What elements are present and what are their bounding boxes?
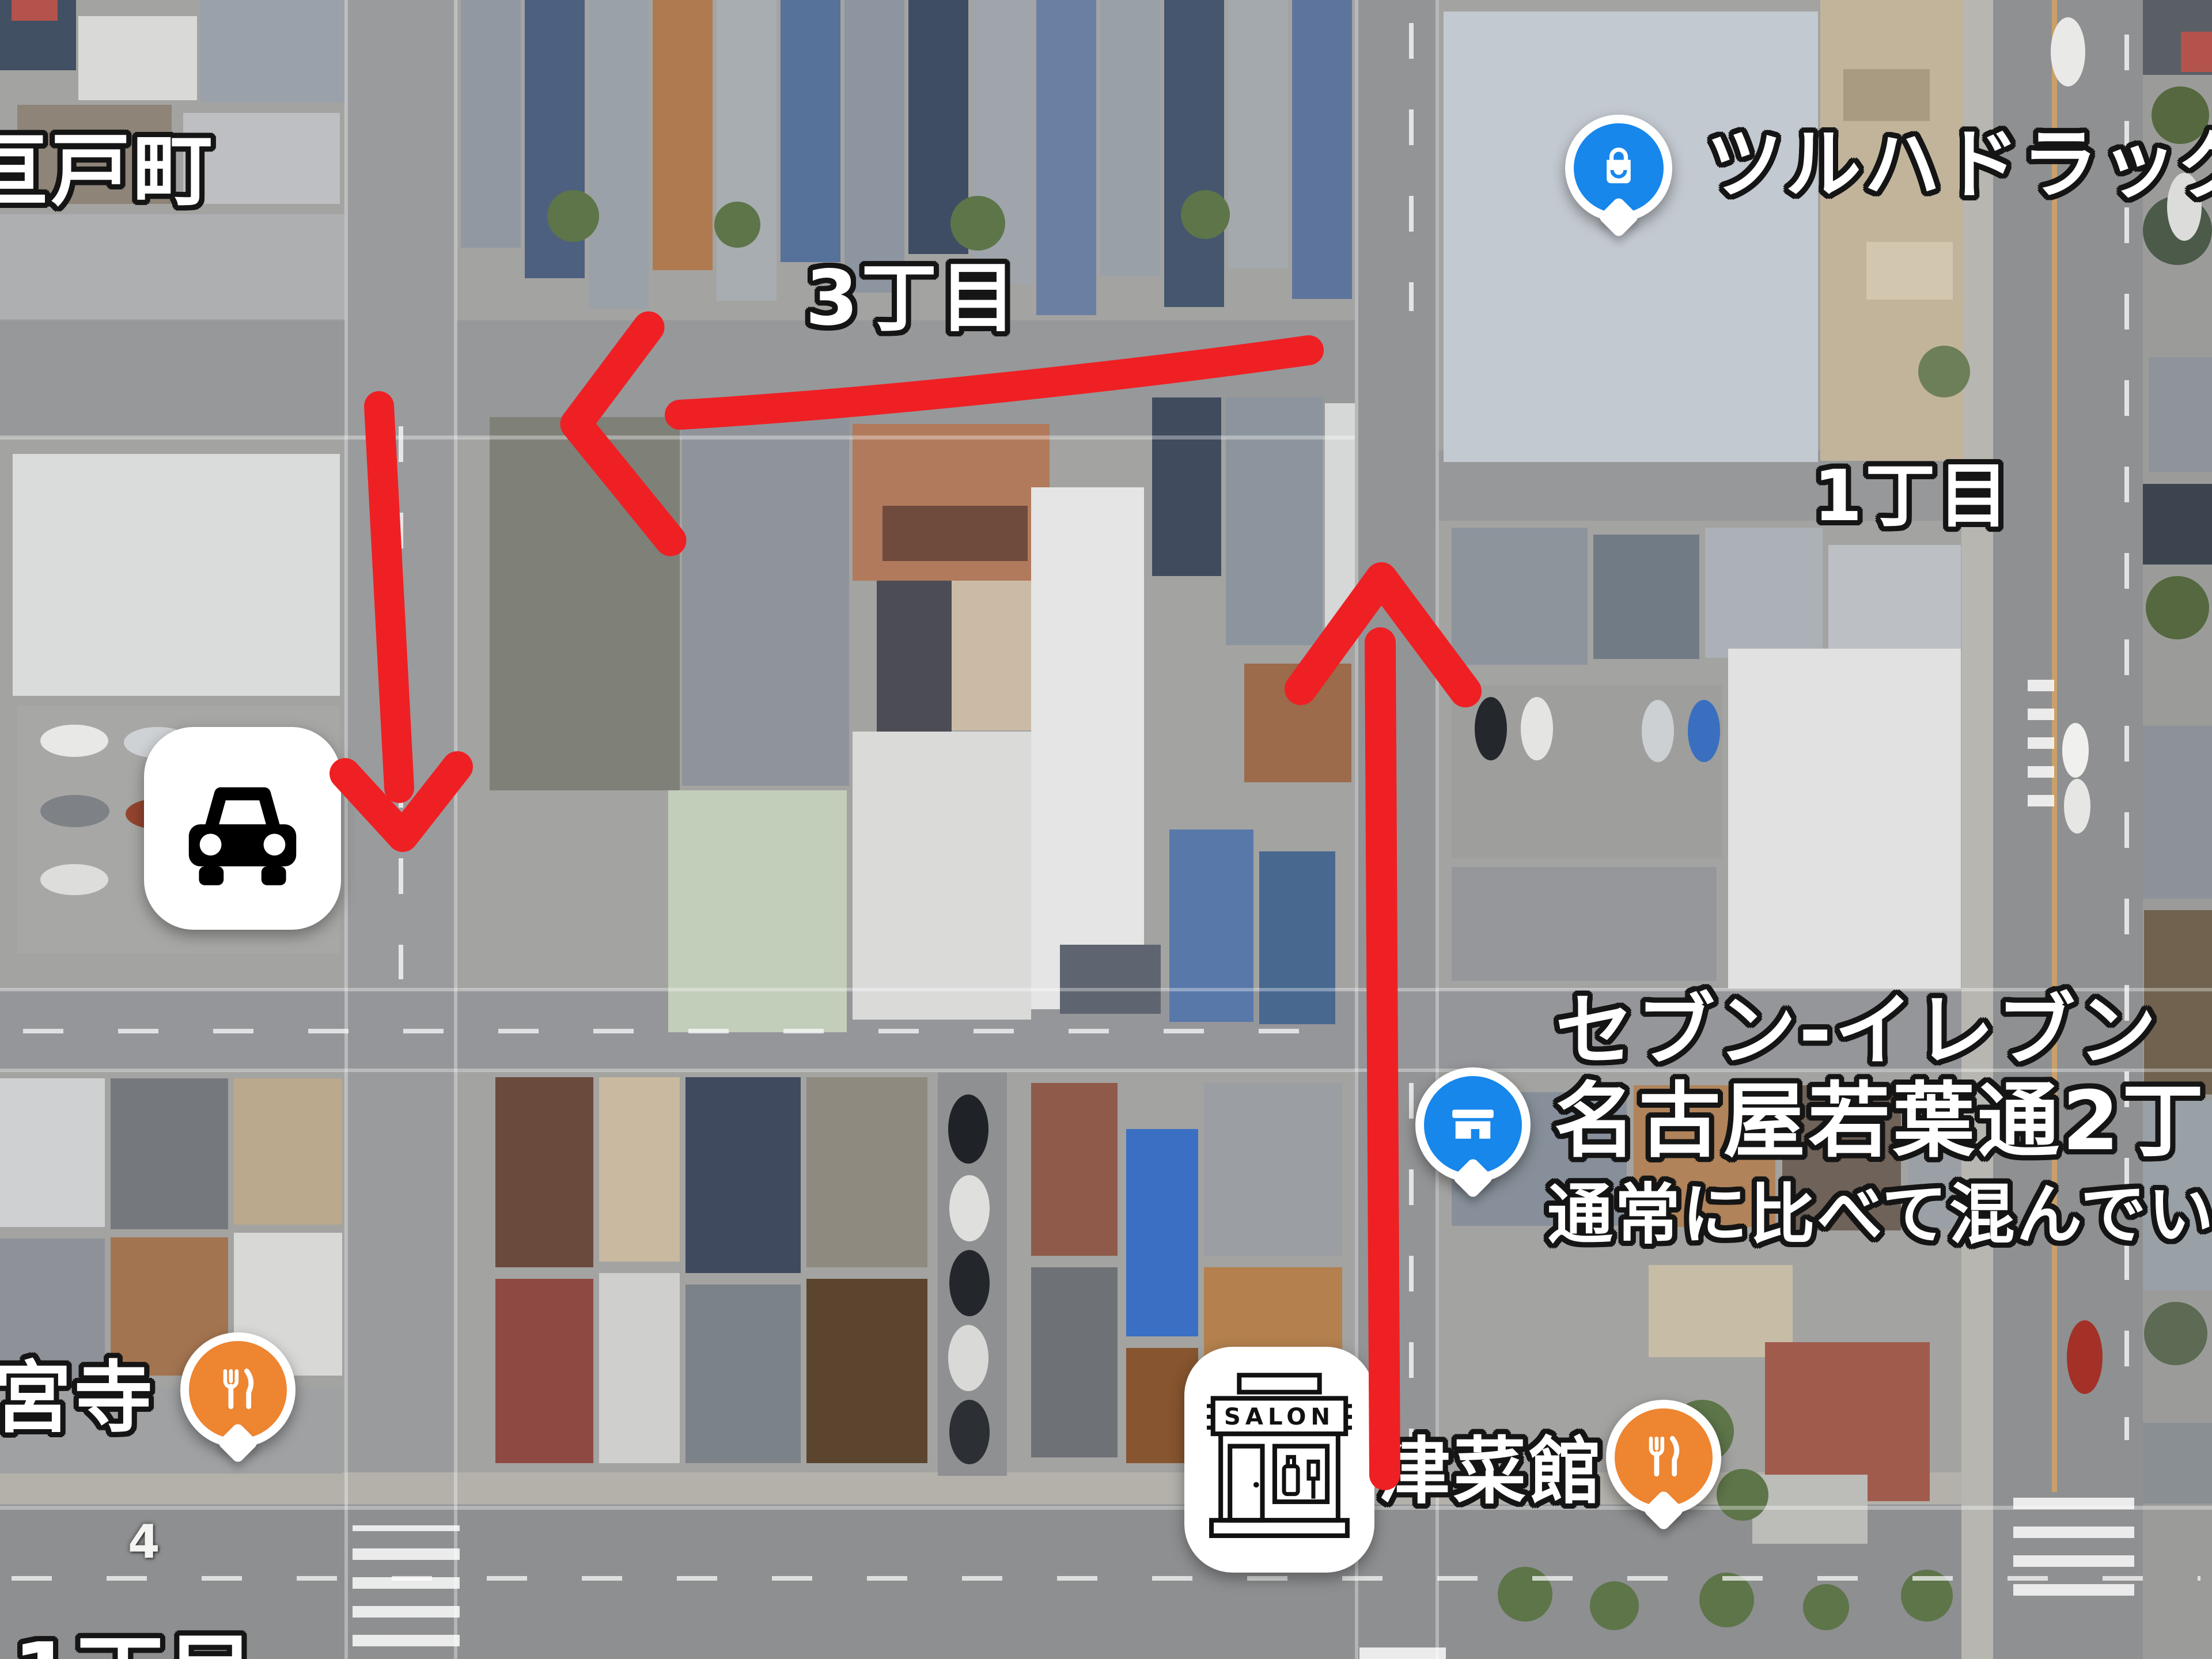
route-arrow-down bbox=[345, 406, 457, 836]
route-arrow-left bbox=[576, 327, 1309, 540]
route-arrow-up bbox=[1301, 578, 1465, 1475]
satellite-map: 亘戸町 3丁目 1丁目 宮寺 津菜館 1丁目 4 ツルハドラッグ bbox=[0, 0, 2212, 1659]
route-arrows bbox=[0, 0, 2212, 1659]
